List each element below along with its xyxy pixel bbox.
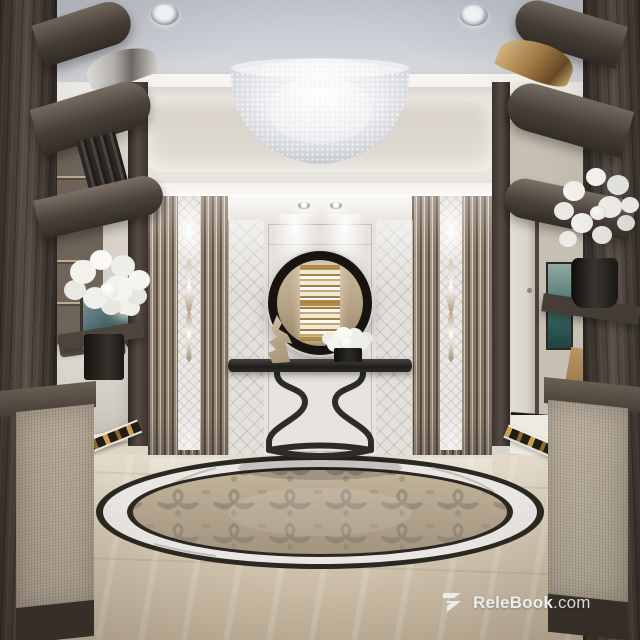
crystal-chandelier — [225, 52, 415, 170]
cabinet-base — [16, 600, 94, 640]
downlight-icon — [330, 202, 342, 209]
mirror-glass — [277, 260, 363, 346]
watermark-brand: ReleBook — [473, 593, 553, 612]
slatted-pillar — [412, 196, 492, 462]
downlight-icon — [460, 5, 488, 26]
cabinet-front — [548, 400, 628, 606]
white-flower-arrangement — [100, 282, 118, 298]
orchid-arrangement — [590, 206, 606, 220]
doorway-post — [128, 82, 148, 446]
door-handle-icon — [527, 288, 532, 293]
hallway-door — [510, 200, 539, 416]
wall-sconce-icon — [183, 258, 195, 362]
foyer-scene: ReleBook.com — [0, 0, 640, 640]
mirror-reflection-chandelier — [300, 265, 340, 341]
watermark-text: ReleBook.com — [473, 593, 591, 613]
sconce-strip — [440, 196, 462, 450]
flower-planter — [84, 334, 124, 380]
console-tabletop — [228, 359, 412, 372]
downlight-icon — [151, 4, 179, 25]
cabinet-front — [16, 404, 94, 612]
watermark: ReleBook.com — [438, 590, 591, 616]
console-table-legs — [237, 370, 403, 462]
downlight-icon — [298, 202, 310, 209]
sconce-strip — [178, 196, 200, 450]
wall-sconce-icon — [445, 258, 457, 362]
doorway-post — [492, 82, 510, 446]
relebook-logo-icon — [438, 590, 466, 616]
upholstered-cabinet — [0, 382, 96, 640]
slatted-pillar — [148, 196, 228, 462]
floor-medallion — [94, 452, 546, 572]
orchid-vase — [572, 258, 618, 308]
cube-vase — [334, 348, 362, 362]
watermark-suffix: .com — [553, 593, 591, 612]
